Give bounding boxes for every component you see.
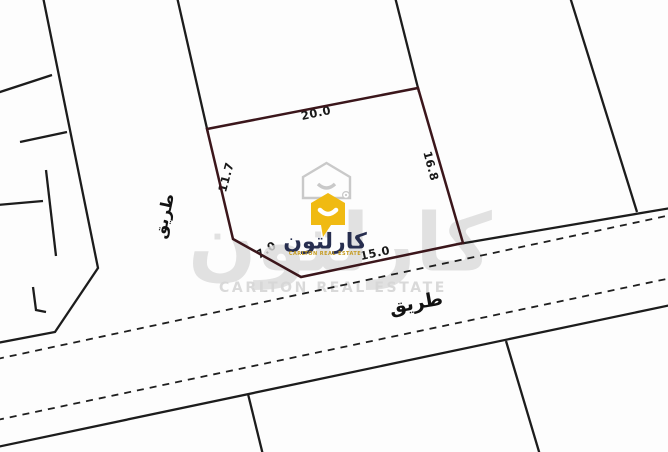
logo-tagline: CARLTON REAL ESTATE (289, 251, 361, 257)
road-centerline-lower (0, 278, 668, 420)
cadastral-map: كارلتون CARLTON REAL ESTATE (0, 0, 668, 452)
lower-parcel-divider-2 (506, 341, 540, 452)
left-parcel-line-a (0, 75, 52, 93)
logo-outline-bubble-icon (303, 163, 350, 198)
road-bottom-edge (0, 305, 668, 447)
left-parcel-line-c (46, 170, 56, 256)
lower-parcel-divider-1 (248, 394, 263, 452)
road-left-edge (0, 0, 98, 343)
upper-parcel-right-line (395, 0, 419, 92)
left-parcel-line-e (33, 287, 46, 312)
right-parcel-divider (570, 0, 637, 212)
left-parcel-line-b (20, 132, 67, 142)
left-parcel-line-d (0, 201, 43, 205)
upper-parcel-left-line (177, 0, 208, 133)
road-top-edge-right (461, 208, 668, 244)
